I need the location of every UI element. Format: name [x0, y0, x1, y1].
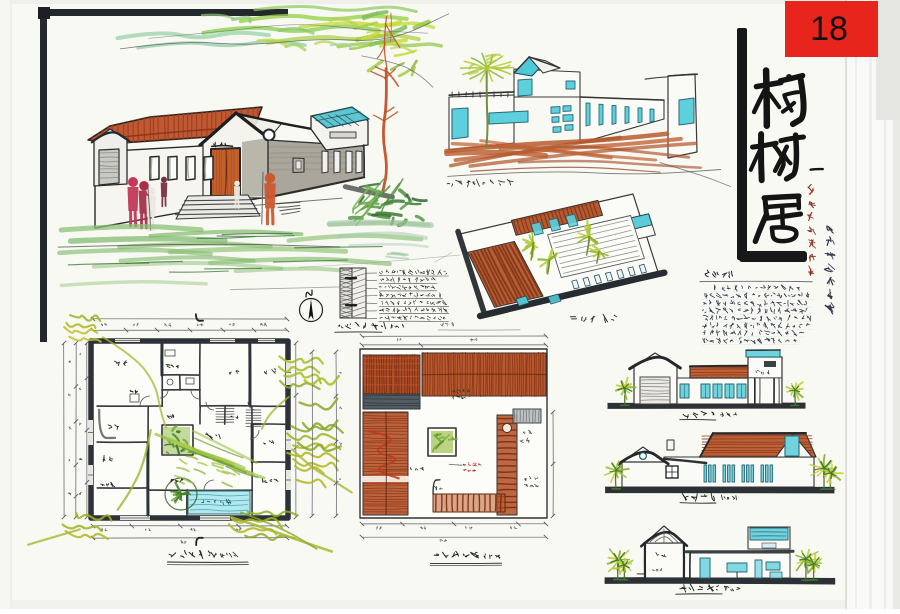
svg-text:18: 18: [810, 10, 848, 48]
